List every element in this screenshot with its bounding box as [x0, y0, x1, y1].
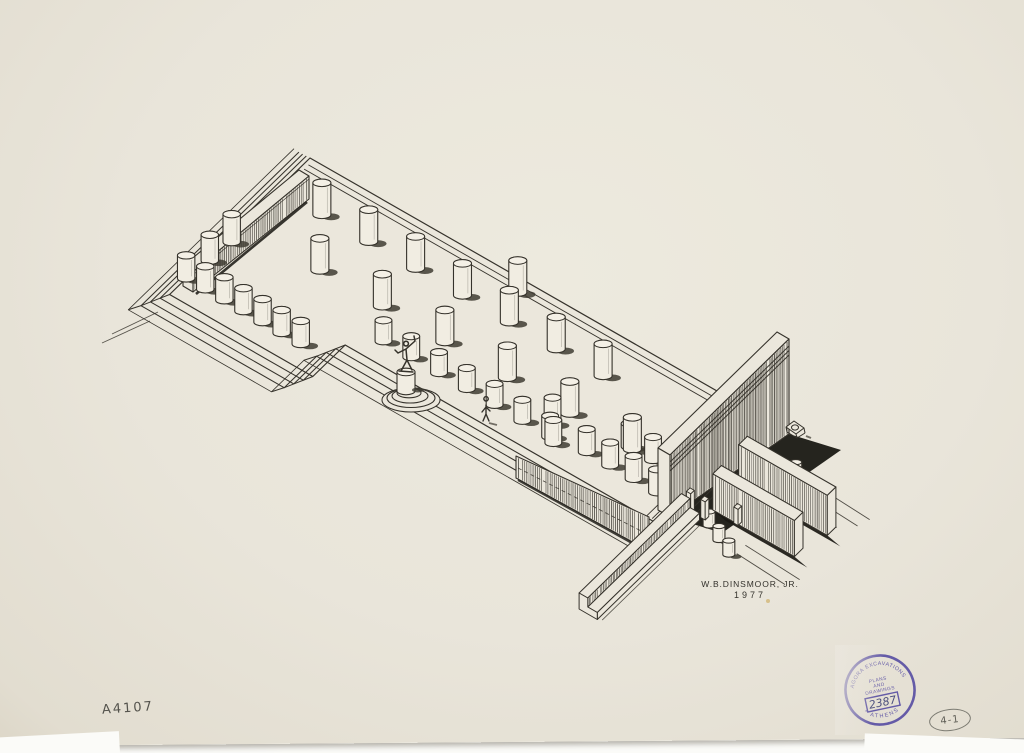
pencil-sheet-number-text: 4-1	[940, 713, 961, 726]
stamp-number: 2387	[868, 693, 898, 712]
signature-year: 1977	[688, 590, 812, 600]
agora-excavations-stamp: AGORA EXCAVATIONS * ATHENS * PLANS AND D…	[829, 639, 931, 741]
isometric-stoa-drawing	[0, 0, 1024, 753]
signature-block: W.B.DINSMOOR, JR. 1977	[688, 579, 812, 600]
scanned-sheet: W.B.DINSMOOR, JR. 1977 A4107 4-1 AGORA E…	[0, 0, 1024, 753]
signature: W.B.DINSMOOR, JR.	[688, 579, 812, 589]
